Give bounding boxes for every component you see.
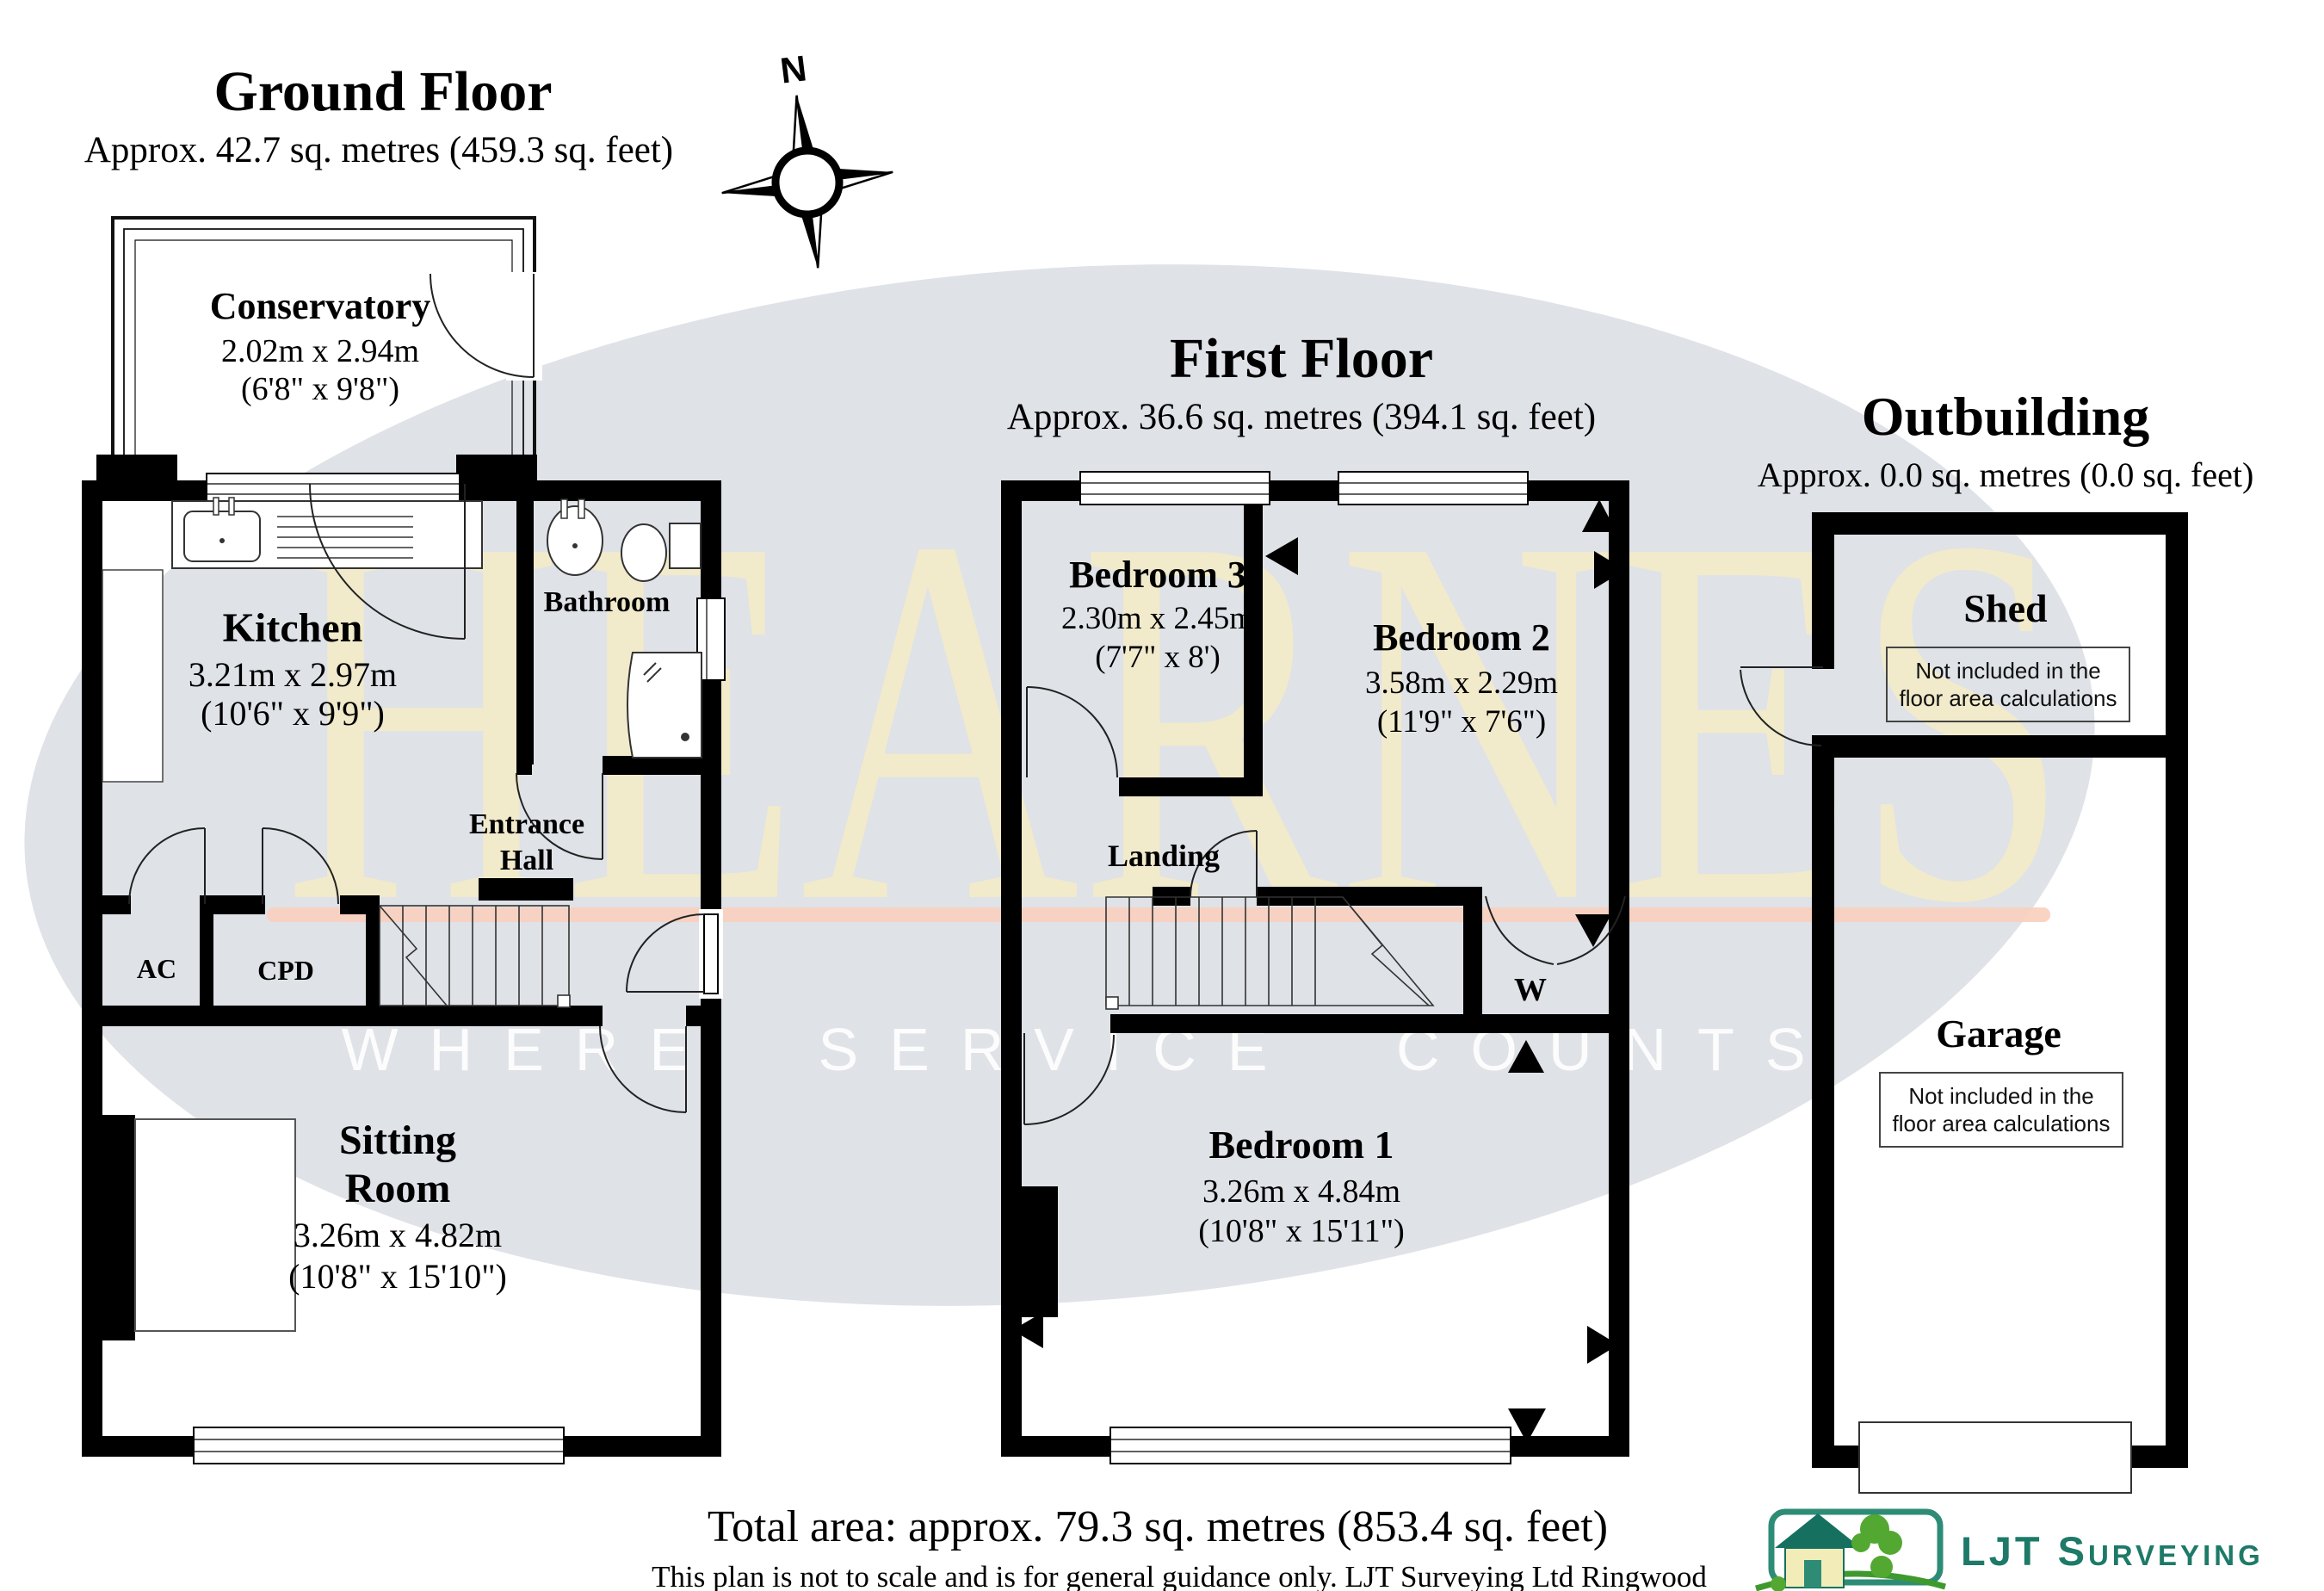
logo-text: LJT Surveying bbox=[1961, 1528, 2264, 1574]
wardrobe-label: W bbox=[1514, 972, 1547, 1008]
first-floor-subtitle: Approx. 36.6 sq. metres (394.1 sq. feet) bbox=[1007, 397, 1596, 437]
kitchen-imperial: (10'6" x 9'9") bbox=[201, 694, 385, 733]
toilet-cistern bbox=[670, 523, 701, 568]
ground-floor-subtitle: Approx. 42.7 sq. metres (459.3 sq. feet) bbox=[84, 130, 673, 170]
outbuilding-title: Outbuilding bbox=[1862, 386, 2149, 447]
garage-door bbox=[1859, 1422, 2131, 1493]
cpd-label: CPD bbox=[257, 955, 314, 986]
landing-label: Landing bbox=[1108, 839, 1220, 873]
fireplace-alcove bbox=[135, 1119, 295, 1331]
bedroom1-metric: 3.26m x 4.84m bbox=[1202, 1173, 1400, 1210]
bathroom-sink bbox=[547, 506, 603, 575]
toilet-bowl bbox=[621, 524, 666, 581]
ac-label: AC bbox=[137, 953, 176, 984]
sitting-room-window bbox=[194, 1427, 564, 1464]
conservatory-imperial: (6'8" x 9'8") bbox=[241, 371, 399, 407]
shower bbox=[627, 653, 702, 758]
compass-icon: N bbox=[706, 39, 904, 278]
bedroom2-imperial: (11'9" x 7'6") bbox=[1377, 704, 1546, 740]
kitchen-window bbox=[207, 474, 460, 505]
entrance-hall-line1: Entrance bbox=[469, 808, 584, 840]
kitchen-metric: 3.21m x 2.97m bbox=[189, 655, 397, 694]
shed-note-line2: floor area calculations bbox=[1900, 685, 2117, 711]
conservatory-metric: 2.02m x 2.94m bbox=[221, 333, 419, 369]
bedroom1-label: Bedroom 1 bbox=[1208, 1123, 1394, 1167]
bedroom2-label: Bedroom 2 bbox=[1373, 616, 1550, 659]
sitting-room-line1: Sitting bbox=[339, 1117, 456, 1163]
bedroom1-imperial: (10'8" x 15'11") bbox=[1198, 1213, 1405, 1249]
total-area-text: Total area: approx. 79.3 sq. metres (853… bbox=[708, 1502, 1608, 1551]
entrance-hall-line2: Hall bbox=[500, 845, 553, 876]
ground-floor-title: Ground Floor bbox=[213, 60, 552, 123]
kitchen-label: Kitchen bbox=[223, 605, 363, 651]
garage-note-line2: floor area calculations bbox=[1893, 1111, 2111, 1136]
shed-label: Shed bbox=[1963, 586, 2048, 630]
sitting-room-line2: Room bbox=[345, 1166, 451, 1211]
kitchen-counter bbox=[172, 498, 482, 568]
ljt-surveying-logo: LJT Surveying bbox=[1756, 1512, 2264, 1591]
floorplan-page: HEARNES WHERE SERVICE COUNTS N Ground Fl… bbox=[0, 0, 2324, 1591]
garage-note-line1: Not included in the bbox=[1908, 1083, 2093, 1109]
kitchen-unit bbox=[102, 570, 163, 782]
sitting-room-metric: 3.26m x 4.82m bbox=[294, 1216, 502, 1254]
disclaimer-text: This plan is not to scale and is for gen… bbox=[652, 1560, 1707, 1591]
bathroom-label: Bathroom bbox=[544, 586, 671, 618]
compass-north-label: N bbox=[778, 47, 809, 90]
garage-label: Garage bbox=[1936, 1012, 2061, 1056]
outbuilding-subtitle: Approx. 0.0 sq. metres (0.0 sq. feet) bbox=[1758, 455, 2254, 494]
bedroom3-label: Bedroom 3 bbox=[1069, 554, 1246, 596]
bedroom3-imperial: (7'7" x 8') bbox=[1095, 640, 1221, 675]
watermark-text: HEARNES bbox=[284, 429, 2070, 1012]
kitchen-sink bbox=[184, 511, 260, 561]
conservatory-label: Conservatory bbox=[210, 285, 431, 327]
bedroom2-metric: 3.58m x 2.29m bbox=[1365, 665, 1558, 701]
floorplan-canvas: HEARNES WHERE SERVICE COUNTS N Ground Fl… bbox=[0, 0, 2324, 1591]
bedroom3-metric: 2.30m x 2.45m bbox=[1061, 601, 1254, 636]
shed-note-line1: Not included in the bbox=[1915, 658, 2100, 684]
conservatory-door-gap bbox=[506, 272, 542, 381]
sitting-room-imperial: (10'8" x 15'10") bbox=[288, 1257, 507, 1296]
first-floor-title: First Floor bbox=[1170, 327, 1433, 390]
